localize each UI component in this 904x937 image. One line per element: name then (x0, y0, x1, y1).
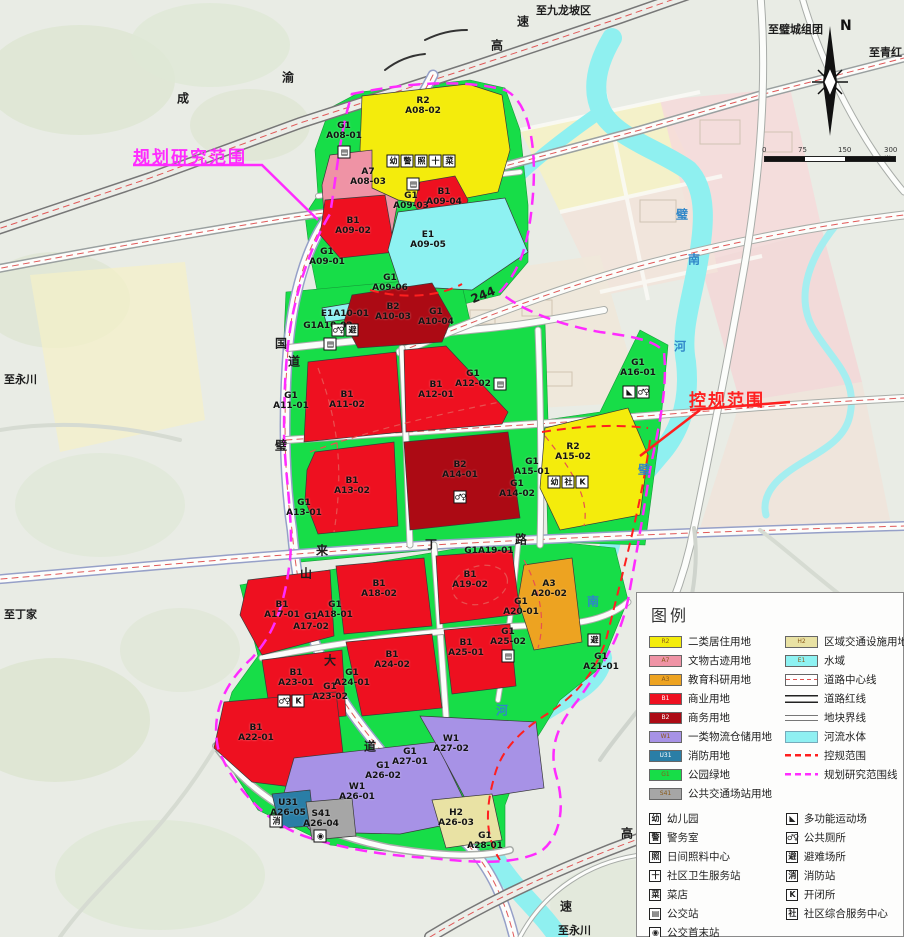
legend-swatch-W1: W1 (649, 731, 682, 743)
legend-label: 道路中心线 (824, 672, 877, 687)
legend-facility-label: 公交首末站 (667, 925, 720, 937)
legend-label: 商业用地 (688, 691, 730, 706)
legend-facility-icon: ▤ (649, 908, 661, 920)
legend-label: 控规范围 (824, 748, 866, 763)
parcel-shape-A25-01 (444, 624, 516, 694)
legend-facility-icon: 消 (786, 870, 798, 882)
legend-facility-label: 日间照料中心 (667, 849, 730, 864)
legend-label: 公共交通场站用地 (688, 786, 772, 801)
legend-facility-row: 十社区卫生服务站 (649, 866, 786, 885)
legend-swatch-R2: R2 (649, 636, 682, 648)
scalebar-segment (805, 157, 845, 161)
legend-swatch-redline (785, 693, 818, 705)
legend-facility-row: 警警务室 (649, 828, 786, 847)
legend-row: 河流水体 (785, 727, 903, 746)
legend-facility-row: ◉公交首末站 (649, 923, 786, 937)
parcel-shape-A18-02 (336, 558, 432, 634)
legend-row: R2二类居住用地 (649, 632, 785, 651)
legend-facility-row: 照日间照料中心 (649, 847, 786, 866)
legend-facility-label: 公共厕所 (804, 830, 846, 845)
legend-label: 河流水体 (824, 729, 866, 744)
legend-row: U31消防用地 (649, 746, 785, 765)
scalebar-label: 150 (838, 146, 851, 154)
legend-panel: 图例 R2二类居住用地A7文物古迹用地A3教育科研用地B1商业用地B2商务用地W… (636, 592, 904, 937)
north-arrow: N (802, 22, 862, 142)
legend-row: G1公园绿地 (649, 765, 785, 784)
scalebar-segment (845, 157, 895, 161)
legend-facility-row: 消消防站 (786, 866, 903, 885)
scale-bar: 075150300米 (762, 146, 904, 166)
scalebar-segment (765, 157, 805, 161)
legend-label: 公园绿地 (688, 767, 730, 782)
legend-row: 控规范围 (785, 746, 903, 765)
legend-label: 二类居住用地 (688, 634, 751, 649)
legend-facility-icon: 社 (786, 908, 798, 920)
legend-facility-row: 避避难场所 (786, 847, 903, 866)
legend-swatch-parcelline (785, 712, 818, 724)
legend-facility-row: 菜菜店 (649, 885, 786, 904)
legend-swatch-centerline (785, 674, 818, 686)
legend-swatch-kg (785, 750, 818, 762)
legend-facility-label: 社区综合服务中心 (804, 906, 888, 921)
legend-facility-label: 菜店 (667, 887, 688, 902)
legend-label: 水域 (824, 653, 845, 668)
legend-row: H2区域交通设施用地 (785, 632, 903, 651)
legend-swatch-E1: E1 (785, 655, 818, 667)
legend-row: 地块界线 (785, 708, 903, 727)
north-label: N (840, 18, 852, 34)
legend-facility-icon: ◉ (649, 927, 661, 937)
parcel-shape-A11-02 (304, 352, 402, 442)
legend-facility-icon: 菜 (649, 889, 661, 901)
scalebar-label: 75 (798, 146, 807, 154)
legend-label: 道路红线 (824, 691, 866, 706)
legend-facility-icon: 避 (786, 851, 798, 863)
legend-label: 消防用地 (688, 748, 730, 763)
parcel-shape-A26-04 (306, 798, 356, 840)
legend-row: S41公共交通场站用地 (649, 784, 785, 803)
legend-facility-label: 幼儿园 (667, 811, 699, 826)
legend-facility-label: 警务室 (667, 830, 699, 845)
legend-row: W1一类物流仓储用地 (649, 727, 785, 746)
legend-swatch-G1: G1 (649, 769, 682, 781)
legend-facility-icon: ◣ (786, 813, 798, 825)
legend-row: E1水域 (785, 651, 903, 670)
legend-swatch-U31: U31 (649, 750, 682, 762)
legend-facility-icon: 十 (649, 870, 661, 882)
legend-facility-icon: 警 (649, 832, 661, 844)
legend-swatch-A7: A7 (649, 655, 682, 667)
legend-facility-label: 多功能运动场 (804, 811, 867, 826)
legend-facility-row: ♂♀公共厕所 (786, 828, 903, 847)
legend-label: 一类物流仓储用地 (688, 729, 772, 744)
legend-label: 地块界线 (824, 710, 866, 725)
legend-row: B1商业用地 (649, 689, 785, 708)
legend-row: B2商务用地 (649, 708, 785, 727)
legend-swatch-A3: A3 (649, 674, 682, 686)
legend-row: 道路中心线 (785, 670, 903, 689)
legend-facility-icon: 幼 (649, 813, 661, 825)
legend-facility-icon: ♂♀ (786, 832, 798, 844)
legend-facility-icon: 照 (649, 851, 661, 863)
scalebar-bar (764, 156, 896, 162)
legend-label: 商务用地 (688, 710, 730, 725)
legend-label: 文物古迹用地 (688, 653, 751, 668)
parcel-shape-A13-02 (305, 442, 398, 534)
control-scope-annotation: 控规范围 (689, 386, 765, 411)
legend-facility-row: ▤公交站 (649, 904, 786, 923)
legend-facility-label: 避难场所 (804, 849, 846, 864)
scalebar-label: 0 (762, 146, 766, 154)
legend-title: 图例 (651, 602, 903, 626)
legend-facility-row: 幼幼儿园 (649, 809, 786, 828)
legend-row: 道路红线 (785, 689, 903, 708)
legend-row: A7文物古迹用地 (649, 651, 785, 670)
legend-swatch-B1: B1 (649, 693, 682, 705)
legend-swatch-H2: H2 (785, 636, 818, 648)
legend-facility-row: K开闭所 (786, 885, 903, 904)
legend-label: 区域交通设施用地 (824, 634, 904, 649)
legend-swatch-plan (785, 769, 818, 781)
legend-facility-label: 公交站 (667, 906, 699, 921)
legend-facility-label: 社区卫生服务站 (667, 868, 741, 883)
legend-facility-row: ◣多功能运动场 (786, 809, 903, 828)
plan-scope-annotation: 规划研究范围 (133, 143, 247, 168)
legend-swatch-S41: S41 (649, 788, 682, 800)
legend-facility-label: 消防站 (804, 868, 836, 883)
legend-label: 规划研究范围线 (824, 767, 898, 782)
planning-map: 至九龙坡区至璧城组团至青红至永川至丁家至永川 成渝高速国道244璧山大道来丁路高… (0, 0, 904, 937)
legend-facility-row: 社社区综合服务中心 (786, 904, 903, 923)
legend-row: 规划研究范围线 (785, 765, 903, 784)
legend-facility-label: 开闭所 (804, 887, 836, 902)
legend-row: A3教育科研用地 (649, 670, 785, 689)
parcel-shape-A14-01 (404, 432, 520, 530)
parcel-shape-A24-02 (346, 634, 442, 716)
legend-swatch-river (785, 731, 818, 743)
legend-label: 教育科研用地 (688, 672, 751, 687)
parcel-shape-A19-02 (436, 550, 520, 624)
legend-facility-icon: K (786, 889, 798, 901)
legend-swatch-B2: B2 (649, 712, 682, 724)
